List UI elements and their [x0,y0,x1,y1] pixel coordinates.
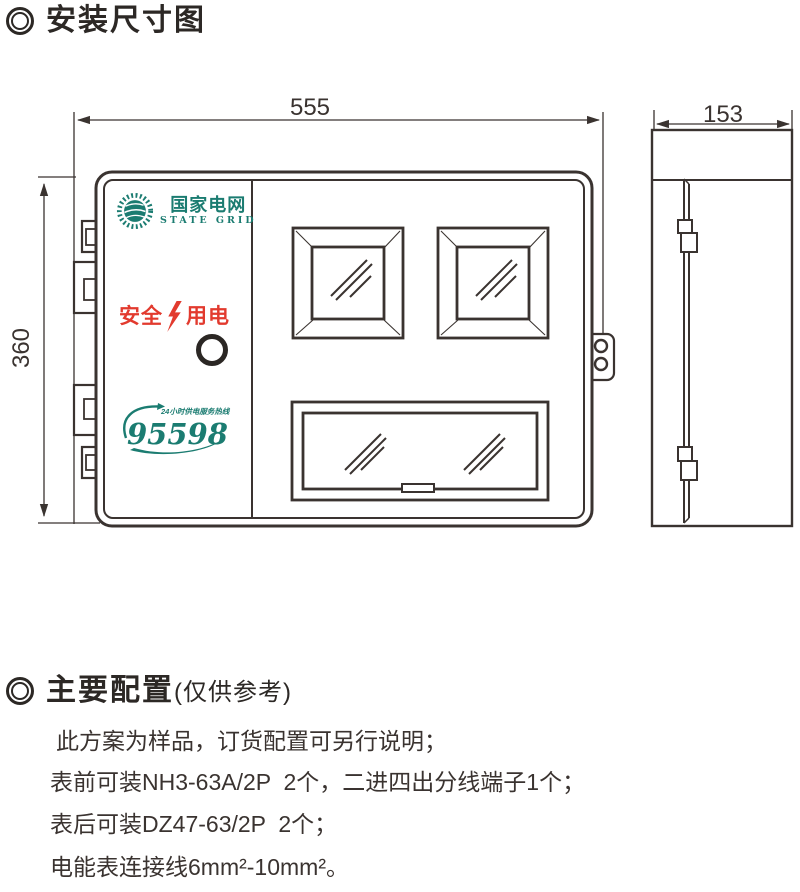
config-line-3: 表后可装DZ47-63/2P 2个； [50,813,337,836]
brand-name-en: STATE GRID [160,215,257,226]
config-line-4: 电能表连接线6mm²-10mm²。 [50,856,349,879]
height-dimension-value: 360 [10,300,34,396]
state-grid-emblem-icon [116,192,154,230]
window-handle-tab [402,484,434,492]
installation-dimension-drawing [0,0,800,560]
left-hinges [74,221,97,478]
page: 安装尺寸图 [0,0,800,892]
config-line-1: 此方案为样品，订货配置可另行说明； [56,730,447,753]
bottom-window [292,402,548,500]
depth-dimension-value: 153 [663,103,783,127]
config-section-title: 主要配置 [46,676,174,706]
side-outline [652,130,792,526]
safety-text-right: 用电 [186,306,230,327]
safety-label: 安全 用电 [119,301,230,332]
safety-text-left: 安全 [119,306,163,327]
state-grid-logo: 国家电网 STATE GRID [116,192,257,230]
hotline-95598-logo: 24小时供电服务热线 95598 [114,402,236,456]
inspection-hole [196,334,228,366]
config-section-header: 主要配置 (仅供参考) [6,676,292,706]
double-circle-bullet-icon [6,677,34,705]
side-view [652,130,792,526]
config-section-subtitle: (仅供参考) [174,677,292,705]
config-line-2: 表前可装NH3-63A/2P 2个，二进四出分线端子1个； [50,771,585,794]
meter-window-2 [438,228,548,338]
brand-name-cn: 国家电网 [170,196,246,215]
hotline-tagline: 24小时供电服务热线 [160,407,231,416]
meter-window-1 [293,228,403,338]
hotline-number: 95598 [127,417,228,451]
width-dimension-value: 555 [250,96,370,120]
lightning-icon [167,301,182,332]
